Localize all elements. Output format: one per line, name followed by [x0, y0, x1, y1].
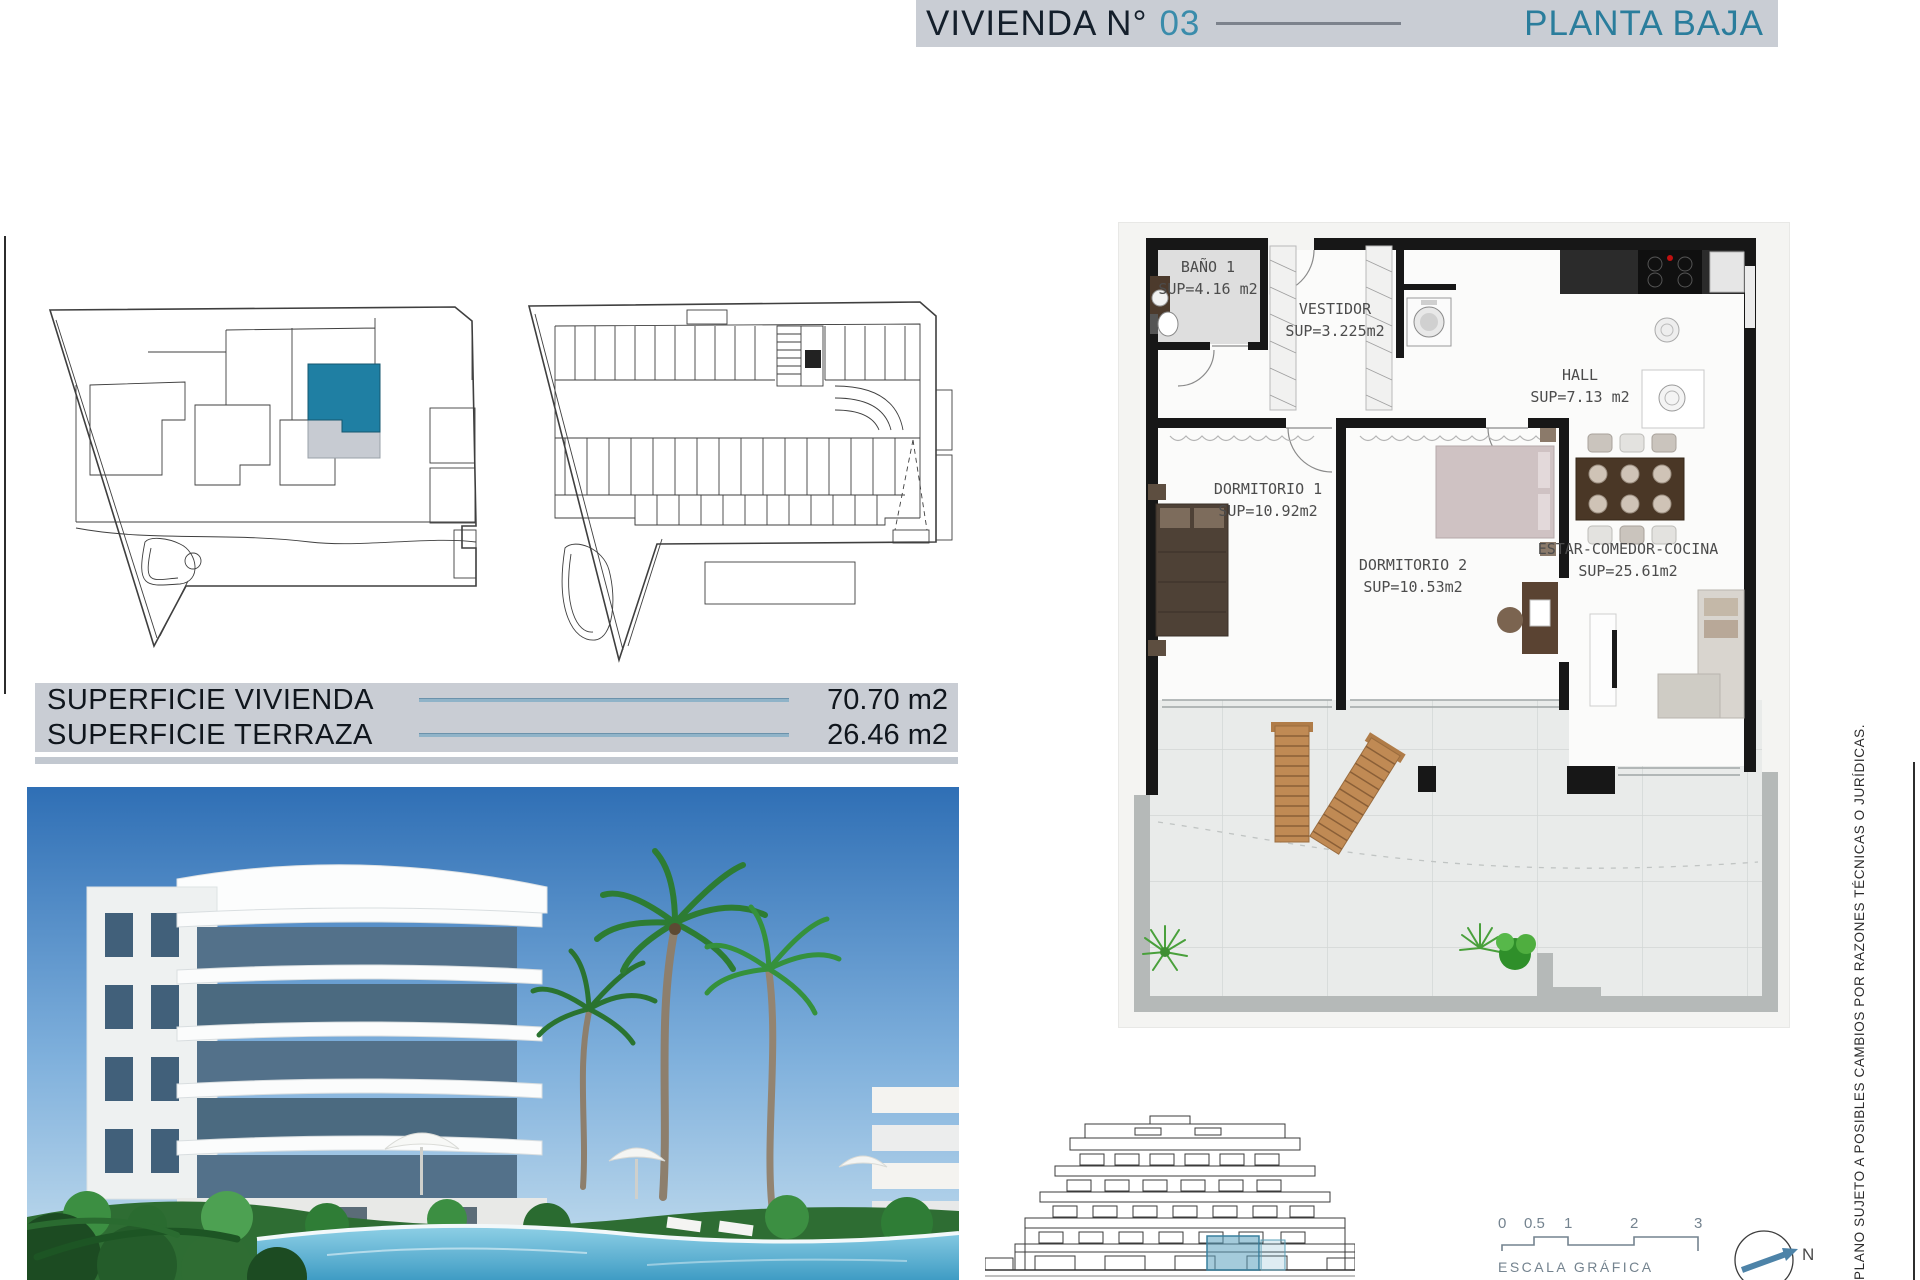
floor-label: PLANTA BAJA — [1524, 4, 1764, 44]
room-label-dormitorio2: DORMITORIO 2 SUP=10.53m2 — [1333, 554, 1493, 598]
surface-value: 26.46 m2 — [827, 719, 948, 752]
disclaimer-text: PLANO SUJETO A POSIBLES CAMBIOS POR RAZO… — [1852, 788, 1880, 1280]
sun-lounger-1 — [1271, 722, 1313, 842]
scale-bar: 0 0.5 1 2 3 ESCALA GRÁFICA — [1498, 1212, 1728, 1280]
room-label-dormitorio1: DORMITORIO 1 SUP=10.92m2 — [1188, 478, 1348, 522]
scale-tick-2: 2 — [1630, 1215, 1638, 1232]
plan-sheet: VIVIENDA N° 03 PLANTA BAJA — [0, 0, 1920, 1280]
elevation-unit-highlight — [1207, 1236, 1259, 1270]
north-label: N — [1802, 1245, 1814, 1264]
surface-table: SUPERFICIE VIVIENDA 70.70 m2 SUPERFICIE … — [35, 683, 958, 752]
building-render-photo — [27, 787, 959, 1280]
room-label-estar: ESTAR-COMEDOR-COCINA SUP=25.61m2 — [1528, 538, 1728, 582]
header-rule — [1216, 22, 1401, 25]
room-label-vestidor: VESTIDOR SUP=3.225m2 — [1255, 298, 1415, 342]
sheet-edge-line-left — [4, 236, 6, 694]
scale-tick-0: 0 — [1498, 1215, 1506, 1232]
site-plan-location — [30, 290, 510, 665]
room-label-bano1: BAÑO 1 SUP=4.16 m2 — [1128, 256, 1288, 300]
north-arrow-icon — [1742, 1254, 1786, 1270]
scale-bar-label: ESCALA GRÁFICA — [1498, 1259, 1654, 1275]
surface-label: SUPERFICIE TERRAZA — [35, 719, 407, 752]
room-label-hall: HALL SUP=7.13 m2 — [1500, 364, 1660, 408]
page-title: VIVIENDA N° — [926, 4, 1147, 44]
scale-bar-line — [1502, 1237, 1698, 1251]
floor-plan — [1118, 222, 1790, 1028]
site-plan-garage — [525, 290, 955, 665]
north-arrow-head-icon — [1782, 1248, 1798, 1261]
sheet-edge-line-right — [1913, 762, 1915, 1280]
building-elevation — [985, 1110, 1355, 1280]
apartment-building — [87, 865, 547, 1246]
surface-value: 70.70 m2 — [827, 684, 948, 717]
surface-row-terraza: SUPERFICIE TERRAZA 26.46 m2 — [35, 720, 958, 751]
scale-tick-05: 0.5 — [1524, 1215, 1545, 1232]
surface-rule — [419, 733, 789, 737]
unit-number: 03 — [1159, 4, 1200, 44]
north-compass: N — [1730, 1222, 1840, 1280]
surface-table-divider — [35, 757, 958, 764]
surface-label: SUPERFICIE VIVIENDA — [35, 684, 407, 717]
header-bar: VIVIENDA N° 03 PLANTA BAJA — [916, 0, 1778, 47]
scale-tick-3: 3 — [1694, 1215, 1702, 1232]
elevation-unit-highlight-2 — [1261, 1240, 1285, 1270]
surface-rule — [419, 698, 789, 702]
surface-row-vivienda: SUPERFICIE VIVIENDA 70.70 m2 — [35, 685, 958, 716]
scale-tick-1: 1 — [1564, 1215, 1572, 1232]
